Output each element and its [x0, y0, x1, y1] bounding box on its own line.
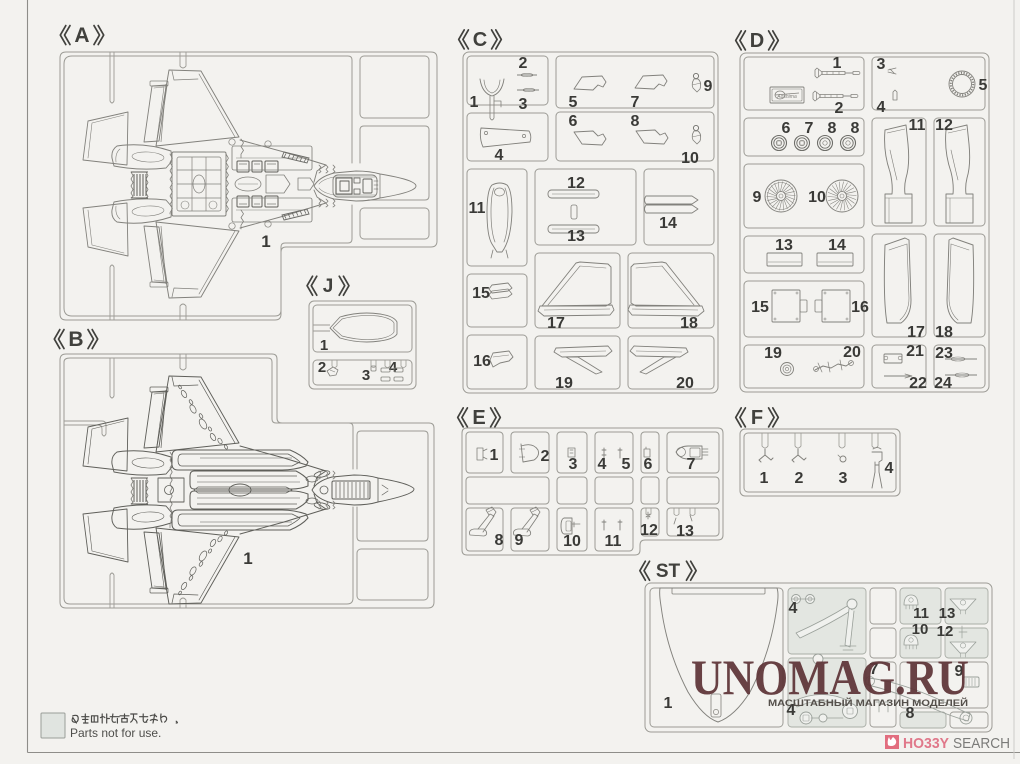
svg-text:3: 3 [839, 470, 848, 487]
svg-text:11: 11 [909, 117, 926, 134]
svg-text:3: 3 [877, 56, 886, 73]
svg-text:12: 12 [937, 623, 954, 640]
svg-text:B: B [68, 328, 83, 351]
svg-text:6: 6 [644, 456, 653, 473]
svg-text:1: 1 [760, 470, 769, 487]
svg-text:18: 18 [680, 315, 698, 332]
svg-text:UNOMAG.RU: UNOMAG.RU [691, 649, 969, 705]
svg-text:9: 9 [753, 189, 762, 206]
svg-text:17: 17 [907, 324, 925, 341]
svg-text:2: 2 [318, 359, 326, 376]
svg-text:3: 3 [519, 96, 528, 113]
svg-text:3: 3 [362, 367, 370, 384]
svg-text:7: 7 [631, 94, 640, 111]
svg-text:11: 11 [913, 605, 929, 622]
svg-text:10: 10 [808, 189, 826, 206]
svg-text:13: 13 [676, 523, 694, 540]
svg-text:11: 11 [605, 533, 622, 550]
svg-text:10: 10 [912, 621, 929, 638]
svg-text:Aoshima: Aoshima [776, 94, 797, 100]
svg-text:4: 4 [598, 456, 607, 473]
svg-text:16: 16 [851, 299, 869, 316]
svg-text:9: 9 [515, 532, 524, 549]
svg-text:6: 6 [782, 120, 791, 137]
svg-text:4: 4 [885, 460, 894, 477]
svg-text:13: 13 [567, 228, 585, 245]
svg-text:9: 9 [704, 78, 713, 95]
svg-text:15: 15 [472, 285, 490, 302]
svg-text:4: 4 [877, 99, 886, 116]
svg-text:F: F [751, 407, 763, 429]
svg-text:4: 4 [789, 600, 798, 617]
svg-text:11: 11 [469, 200, 486, 217]
svg-text:14: 14 [828, 237, 846, 254]
svg-text:10: 10 [563, 533, 581, 550]
svg-text:5: 5 [979, 77, 988, 94]
svg-text:HO33Y: HO33Y [903, 735, 949, 752]
svg-text:C: C [473, 29, 487, 51]
svg-text:15: 15 [751, 299, 769, 316]
svg-text:12: 12 [935, 117, 953, 134]
svg-text:22: 22 [909, 375, 927, 392]
svg-text:8: 8 [631, 113, 640, 130]
svg-text:5: 5 [622, 456, 631, 473]
svg-text:8: 8 [495, 532, 504, 549]
svg-text:20: 20 [676, 375, 694, 392]
svg-text:13: 13 [939, 605, 956, 622]
svg-text:3: 3 [569, 456, 578, 473]
svg-text:ST: ST [656, 561, 681, 582]
svg-text:18: 18 [935, 324, 953, 341]
svg-text:19: 19 [555, 375, 573, 392]
svg-text:2: 2 [541, 448, 550, 465]
svg-text:13: 13 [775, 237, 793, 254]
svg-text:19: 19 [764, 345, 782, 362]
svg-text:2: 2 [795, 470, 804, 487]
svg-text:1: 1 [320, 337, 328, 354]
svg-text:МАСШТАБНЫЙ МАГАЗИН МОДЕЛЕЙ: МАСШТАБНЫЙ МАГАЗИН МОДЕЛЕЙ [768, 697, 968, 709]
svg-text:12: 12 [640, 522, 658, 539]
svg-text:17: 17 [547, 315, 565, 332]
svg-text:1: 1 [470, 94, 479, 111]
svg-text:1: 1 [243, 549, 252, 568]
svg-text:4: 4 [495, 147, 504, 164]
svg-text:7: 7 [687, 456, 696, 473]
svg-text:20: 20 [843, 344, 861, 361]
svg-text:21: 21 [906, 343, 924, 360]
svg-text:Parts not for use.: Parts not for use. [70, 726, 161, 740]
svg-text:E: E [472, 407, 485, 429]
svg-text:J: J [323, 276, 334, 297]
svg-text:14: 14 [659, 215, 677, 232]
svg-text:12: 12 [567, 175, 585, 192]
svg-text:8: 8 [828, 120, 837, 137]
svg-text:16: 16 [473, 353, 491, 370]
svg-text:2: 2 [519, 55, 528, 72]
svg-text:8: 8 [851, 120, 860, 137]
svg-text:D: D [750, 30, 764, 52]
svg-text:1: 1 [490, 447, 499, 464]
svg-text:1: 1 [664, 695, 673, 712]
svg-text:1: 1 [261, 232, 270, 251]
svg-text:10: 10 [681, 150, 699, 167]
svg-text:2: 2 [835, 100, 844, 117]
svg-text:24: 24 [934, 375, 952, 392]
svg-text:7: 7 [805, 120, 814, 137]
svg-text:SEARCH: SEARCH [953, 735, 1010, 752]
svg-text:6: 6 [569, 113, 578, 130]
svg-text:A: A [74, 24, 89, 47]
svg-text:1: 1 [833, 55, 842, 72]
svg-text:5: 5 [569, 94, 578, 111]
svg-text:23: 23 [935, 345, 953, 362]
